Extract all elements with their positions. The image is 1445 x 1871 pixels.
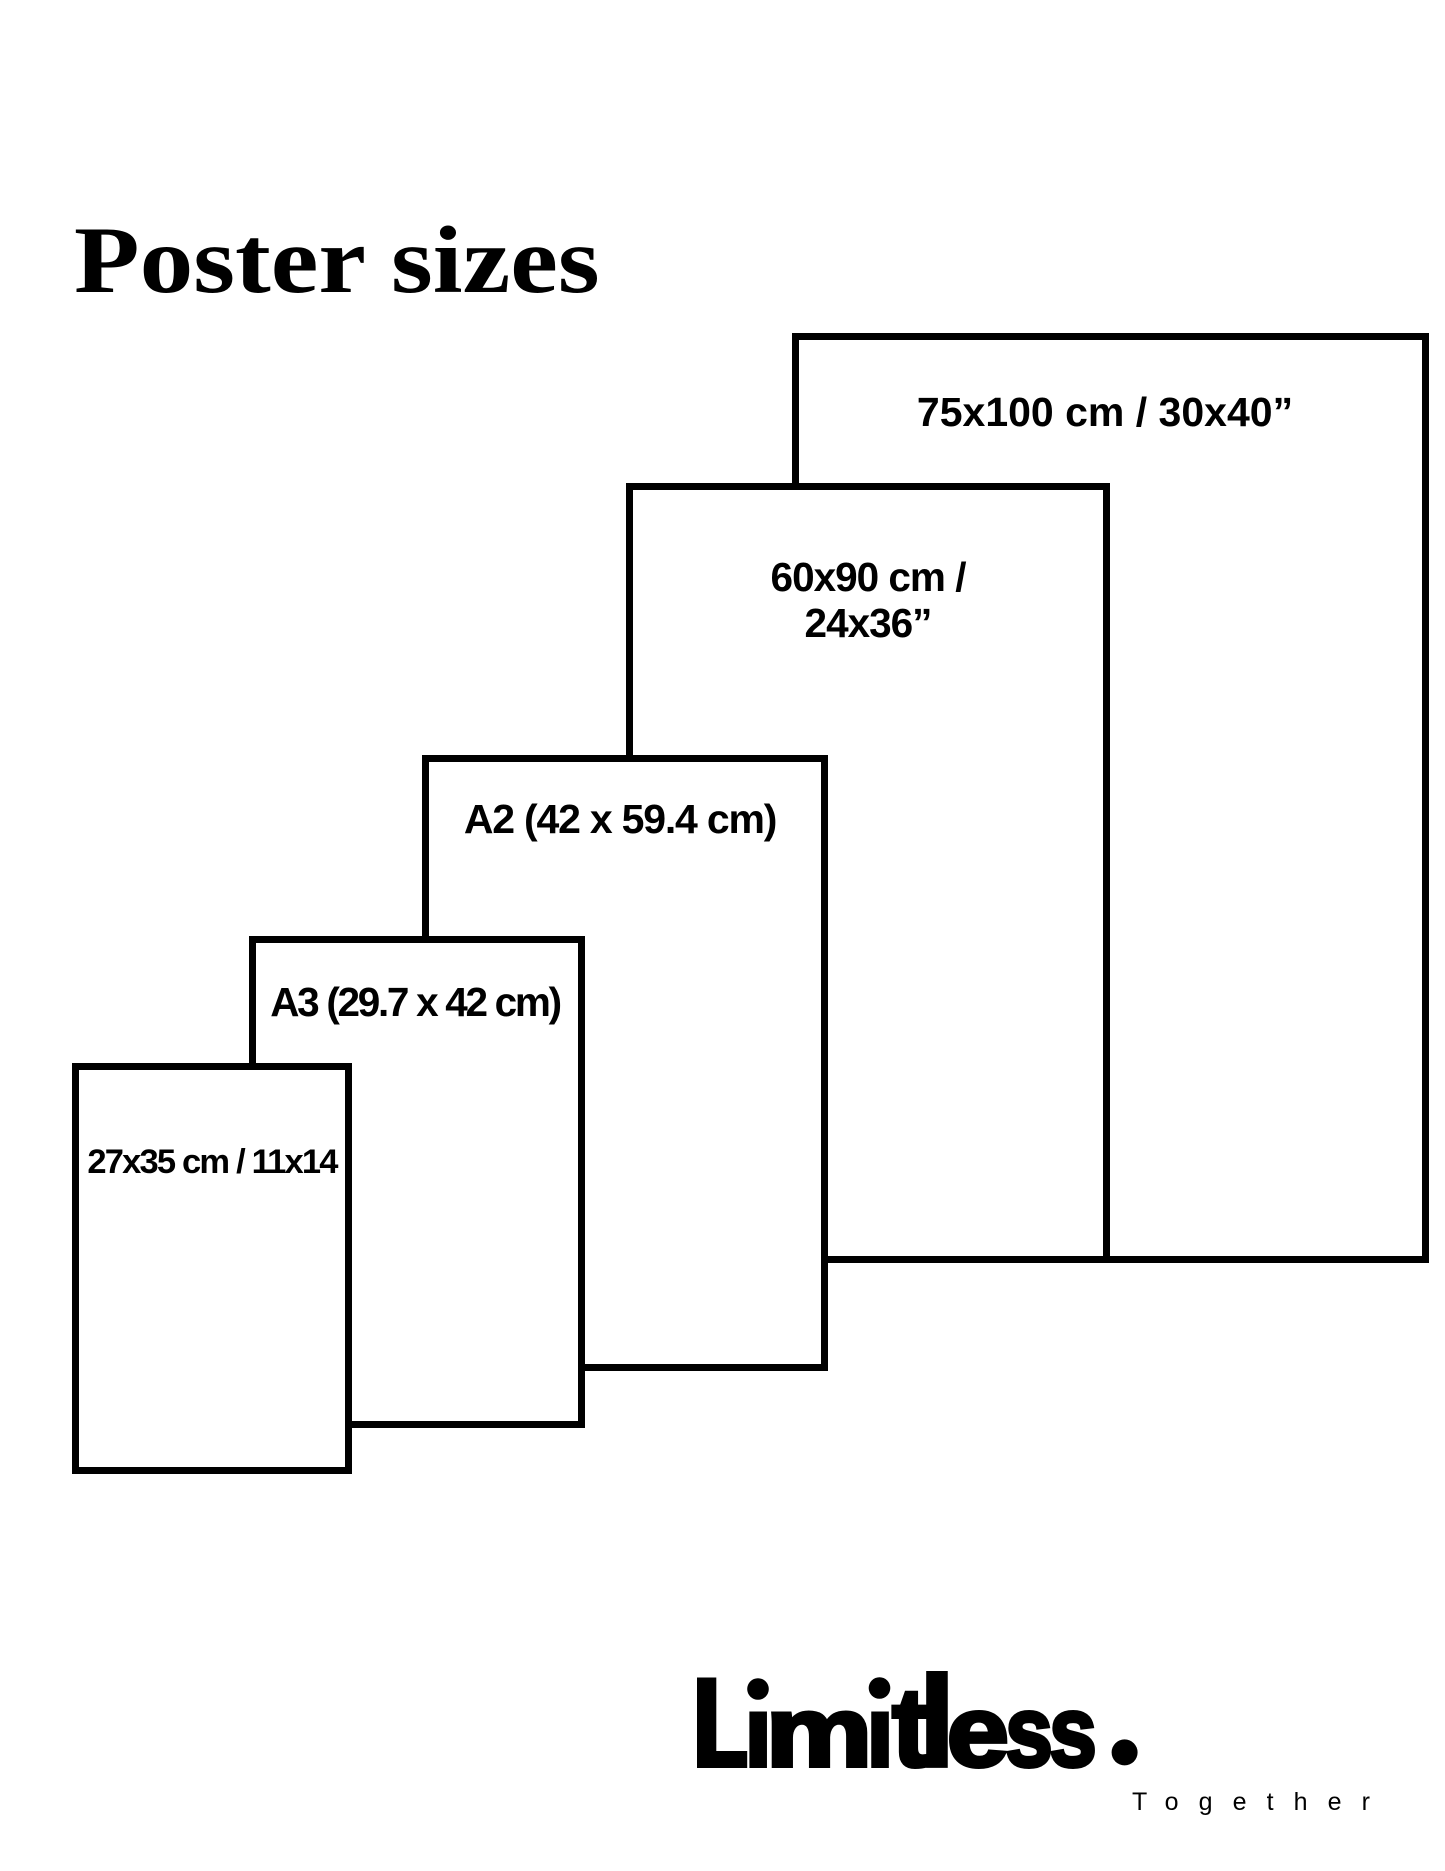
svg-text:m: m bbox=[766, 1678, 873, 1788]
svg-text:s: s bbox=[1005, 1675, 1053, 1787]
svg-text:s: s bbox=[1049, 1675, 1097, 1787]
svg-text:e: e bbox=[947, 1676, 1009, 1788]
